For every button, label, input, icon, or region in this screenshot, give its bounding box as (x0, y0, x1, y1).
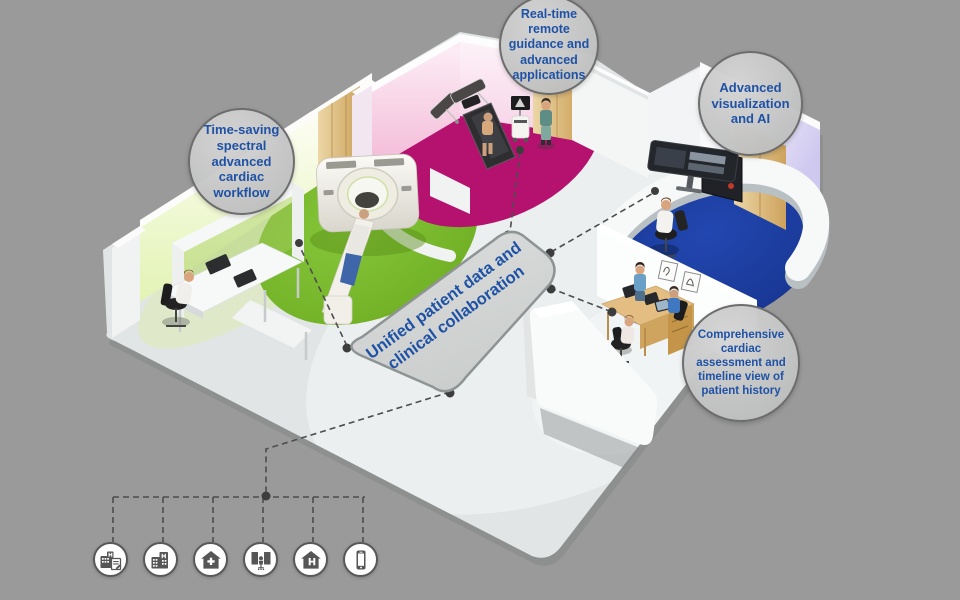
icon-clinic-home-plus[interactable] (193, 542, 228, 577)
icon-home-hospital[interactable] (293, 542, 328, 577)
callout-advanced-visualization-label: Advanced visualization and AI (708, 80, 793, 128)
imaging-workstation-icon (249, 548, 273, 572)
callout-spectral-ct-label: Time-saving spectral advanced cardiac wo… (196, 122, 287, 201)
home-hospital-icon (299, 548, 323, 572)
infographic-canvas: Unified patient data and clinical collab… (0, 0, 960, 600)
callout-remote-guidance[interactable]: Real-time remote guidance and advanced a… (499, 0, 599, 95)
mobile-device-icon (349, 548, 373, 572)
ultrasound-cart (511, 96, 530, 142)
hospital-report-icon (99, 548, 123, 572)
icon-mobile-device[interactable] (343, 542, 378, 577)
isometric-scene: Unified patient data and clinical collab… (0, 0, 960, 600)
icon-hospital-building[interactable] (143, 542, 178, 577)
icon-hospital-report[interactable] (93, 542, 128, 577)
icon-imaging-workstation[interactable] (243, 542, 278, 577)
callout-remote-guidance-label: Real-time remote guidance and advanced a… (506, 7, 592, 83)
callout-spectral-ct[interactable]: Time-saving spectral advanced cardiac wo… (188, 108, 295, 215)
callout-cardiac-assessment[interactable]: Comprehensive cardiac assessment and tim… (682, 304, 800, 422)
callout-cardiac-assessment-label: Comprehensive cardiac assessment and tim… (688, 328, 794, 398)
callout-advanced-visualization[interactable]: Advanced visualization and AI (698, 51, 803, 156)
hospital-building-icon (149, 548, 173, 572)
clinic-home-plus-icon (199, 548, 223, 572)
